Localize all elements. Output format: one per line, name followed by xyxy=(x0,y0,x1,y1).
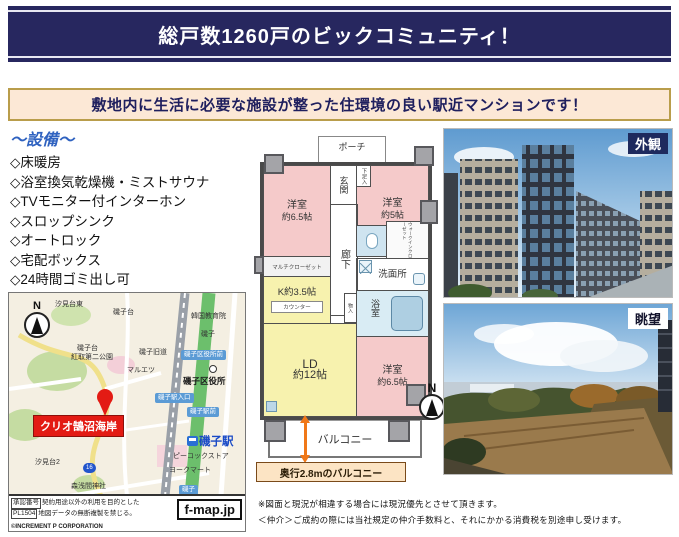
fp-living-dining: LD 約12帖 xyxy=(263,323,357,418)
pillar xyxy=(264,420,286,442)
slop-sink-icon xyxy=(266,401,277,412)
fp-room1: 洋室約6.5帖 xyxy=(263,165,331,257)
map-place: 韓国教育院 xyxy=(191,313,226,321)
access-map: N 汐見台東 磯子台 韓国教育院 磯子 磯子台 紅取第二公園 磯子旧道 磯子区役… xyxy=(8,292,246,532)
pillar xyxy=(414,146,434,166)
floor-plan: ポーチ 洋室約6.5帖 玄関 洋室約5帖 下足入 廊下 マルチクローゼット K約… xyxy=(256,134,438,484)
fp-counter: カウンター xyxy=(271,301,323,313)
fp-walkin-closet: ウォークインクローゼット xyxy=(386,221,430,259)
map-place: 磯子台 xyxy=(77,345,98,353)
fp-shoebox: 下足入 xyxy=(356,165,371,187)
fp-unit: 洋室約6.5帖 玄関 洋室約5帖 下足入 廊下 マルチクローゼット K約3.5帖… xyxy=(260,162,432,420)
facility-item: ◇床暖房 xyxy=(10,153,254,173)
toilet-icon xyxy=(366,233,378,249)
fp-toilet xyxy=(356,225,387,257)
map-place: 磯子旧道 xyxy=(139,349,167,357)
route-number-badge: 16 xyxy=(83,463,96,473)
disclaimer-note: ※図面と現況が相違する場合には現況優先とさせて頂きます。 xyxy=(258,498,502,510)
compass-icon xyxy=(24,312,50,338)
balcony-depth-arrow-icon xyxy=(304,422,307,456)
map-place: 汐見台2 xyxy=(35,459,60,467)
map-shrine: 森浅間神社 xyxy=(71,483,106,491)
map-footer: 承認番号契約用途以外の利用を目的とした PL1504地図データの無断複製を禁じる… xyxy=(9,494,245,531)
map-store: ヨークマート xyxy=(169,467,211,475)
city-office-icon xyxy=(209,365,217,373)
fp-kitchen: K約3.5帖 カウンター xyxy=(263,276,331,324)
facilities-title: 〜設備〜 xyxy=(10,126,254,150)
pillar xyxy=(388,420,410,442)
map-place: 汐見台東 xyxy=(55,301,83,309)
sub-headline: 敷地内に生活に必要な施設が整った住環境の良い駅近マンションです！ xyxy=(8,88,671,121)
exterior-photo: 外観 xyxy=(443,128,673,298)
pillar xyxy=(420,200,438,224)
bathtub-icon xyxy=(391,296,423,331)
facility-item: ◇オートロック xyxy=(10,231,254,251)
view-photo-label: 眺望 xyxy=(628,308,668,329)
balcony-depth-note: 奥行2.8mのバルコニー xyxy=(256,462,406,482)
map-busstop-badge: 磯子駅入口 xyxy=(155,393,194,403)
map-place: 紅取第二公園 xyxy=(71,354,113,362)
view-photo: 眺望 xyxy=(443,303,673,475)
map-store: マルエツ xyxy=(127,367,155,375)
fp-porch: ポーチ xyxy=(318,136,386,164)
train-icon xyxy=(187,436,198,446)
map-busstop-badge: 磯子区役所前 xyxy=(181,350,226,360)
flyer-page: 総戸数1260戸のビックコミュニティ！ 敷地内に生活に必要な施設が整った住環境の… xyxy=(0,0,679,537)
map-station: 磯子駅 xyxy=(187,433,234,449)
map-compass: N xyxy=(23,301,51,338)
property-marker-icon xyxy=(97,389,113,405)
pillar xyxy=(254,256,264,274)
facility-item: ◇宅配ボックス xyxy=(10,251,254,271)
fmap-logo: f-map.jp xyxy=(177,499,242,520)
facilities-section: 〜設備〜 ◇床暖房 ◇浴室換気乾燥機・ミストサウナ ◇TVモニター付インターホン… xyxy=(10,126,254,290)
fp-genkan: 玄関 xyxy=(330,165,358,205)
map-place: 磯子区役所 xyxy=(183,377,226,385)
washing-machine-icon xyxy=(359,260,372,273)
washbasin-icon xyxy=(413,273,425,285)
facility-item: ◇スロップシンク xyxy=(10,212,254,232)
main-headline-banner: 総戸数1260戸のビックコミュニティ！ xyxy=(8,6,671,62)
facility-item: ◇浴室換気乾燥機・ミストサウナ xyxy=(10,173,254,193)
compass-icon xyxy=(419,394,445,420)
pillar xyxy=(264,154,284,174)
facility-item: ◇TVモニター付インターホン xyxy=(10,192,254,212)
map-store: ピーコックストア xyxy=(173,453,229,461)
map-busstop-badge: 磯子駅前 xyxy=(187,407,219,417)
exterior-photo-art xyxy=(444,129,673,298)
fp-multi-closet: マルチクローゼット xyxy=(263,256,331,278)
brokerage-note: ＜仲介＞ご成約の際には当社規定の仲介手数料と、それにかかる消費税を別途申し受けま… xyxy=(258,514,626,526)
fp-storage: 物入 xyxy=(344,293,357,323)
map-place: 磯子台 xyxy=(113,309,134,317)
property-marker-label: クリオ鵠沼海岸 xyxy=(33,415,124,437)
view-photo-art xyxy=(444,304,673,475)
main-headline: 総戸数1260戸のビックコミュニティ！ xyxy=(8,6,671,62)
facility-item: ◇24時間ゴミ出し可 xyxy=(10,270,254,290)
map-place: 磯子 xyxy=(201,331,215,339)
exterior-photo-label: 外観 xyxy=(628,133,668,154)
map-credit-text: 承認番号契約用途以外の利用を目的とした PL1504地図データの無断複製を禁じる… xyxy=(11,498,140,519)
compass-n-label: N xyxy=(23,301,51,312)
map-copyright: ©INCREMENT P CORPORATION xyxy=(11,524,103,530)
